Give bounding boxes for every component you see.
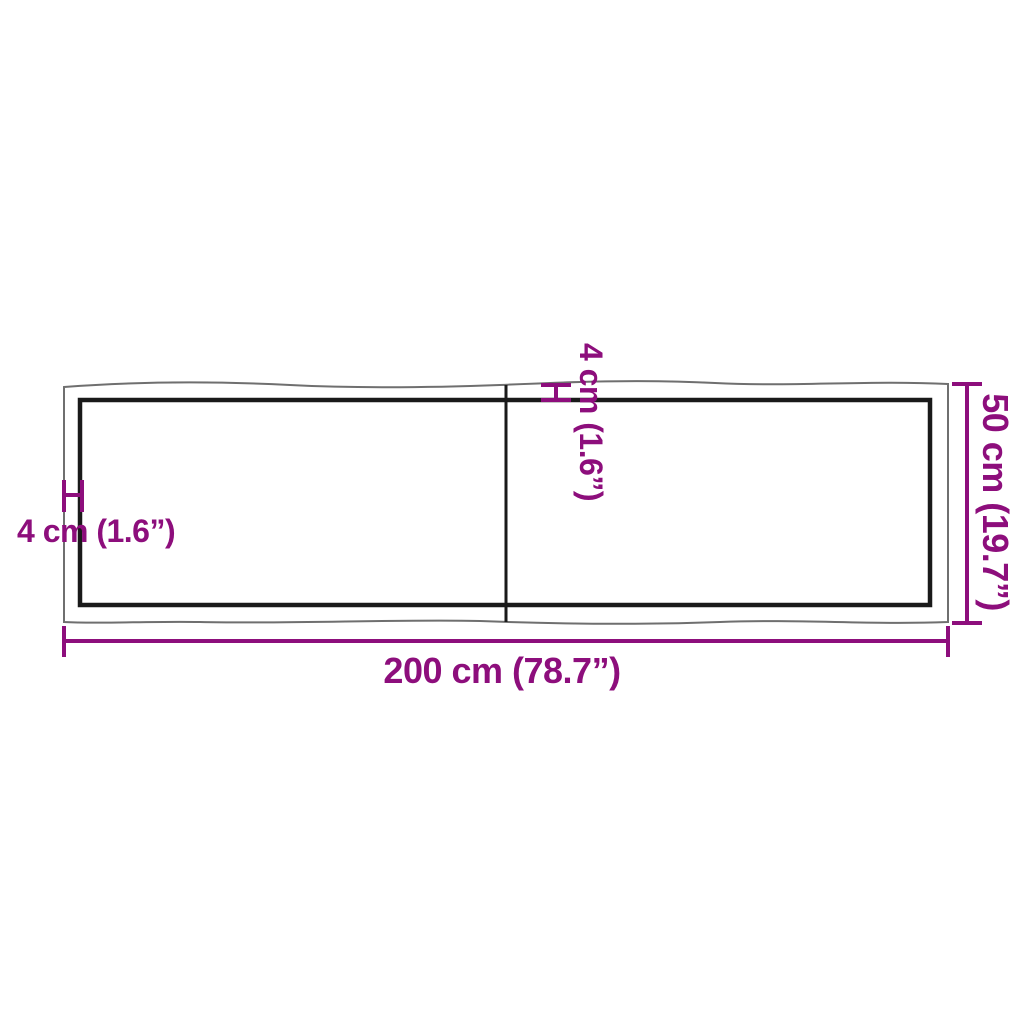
edge-thickness-left-label: 4 cm (1.6”) [17,515,175,547]
depth-dimension-label: 50 cm (19.7”) [977,393,1013,611]
edge-thickness-top-label: 4 cm (1.6”) [575,343,607,501]
width-dimension-label: 200 cm (78.7”) [383,653,620,689]
diagram-drawing [0,0,1024,1024]
dimension-diagram: 200 cm (78.7”) 50 cm (19.7”) 4 cm (1.6”)… [0,0,1024,1024]
